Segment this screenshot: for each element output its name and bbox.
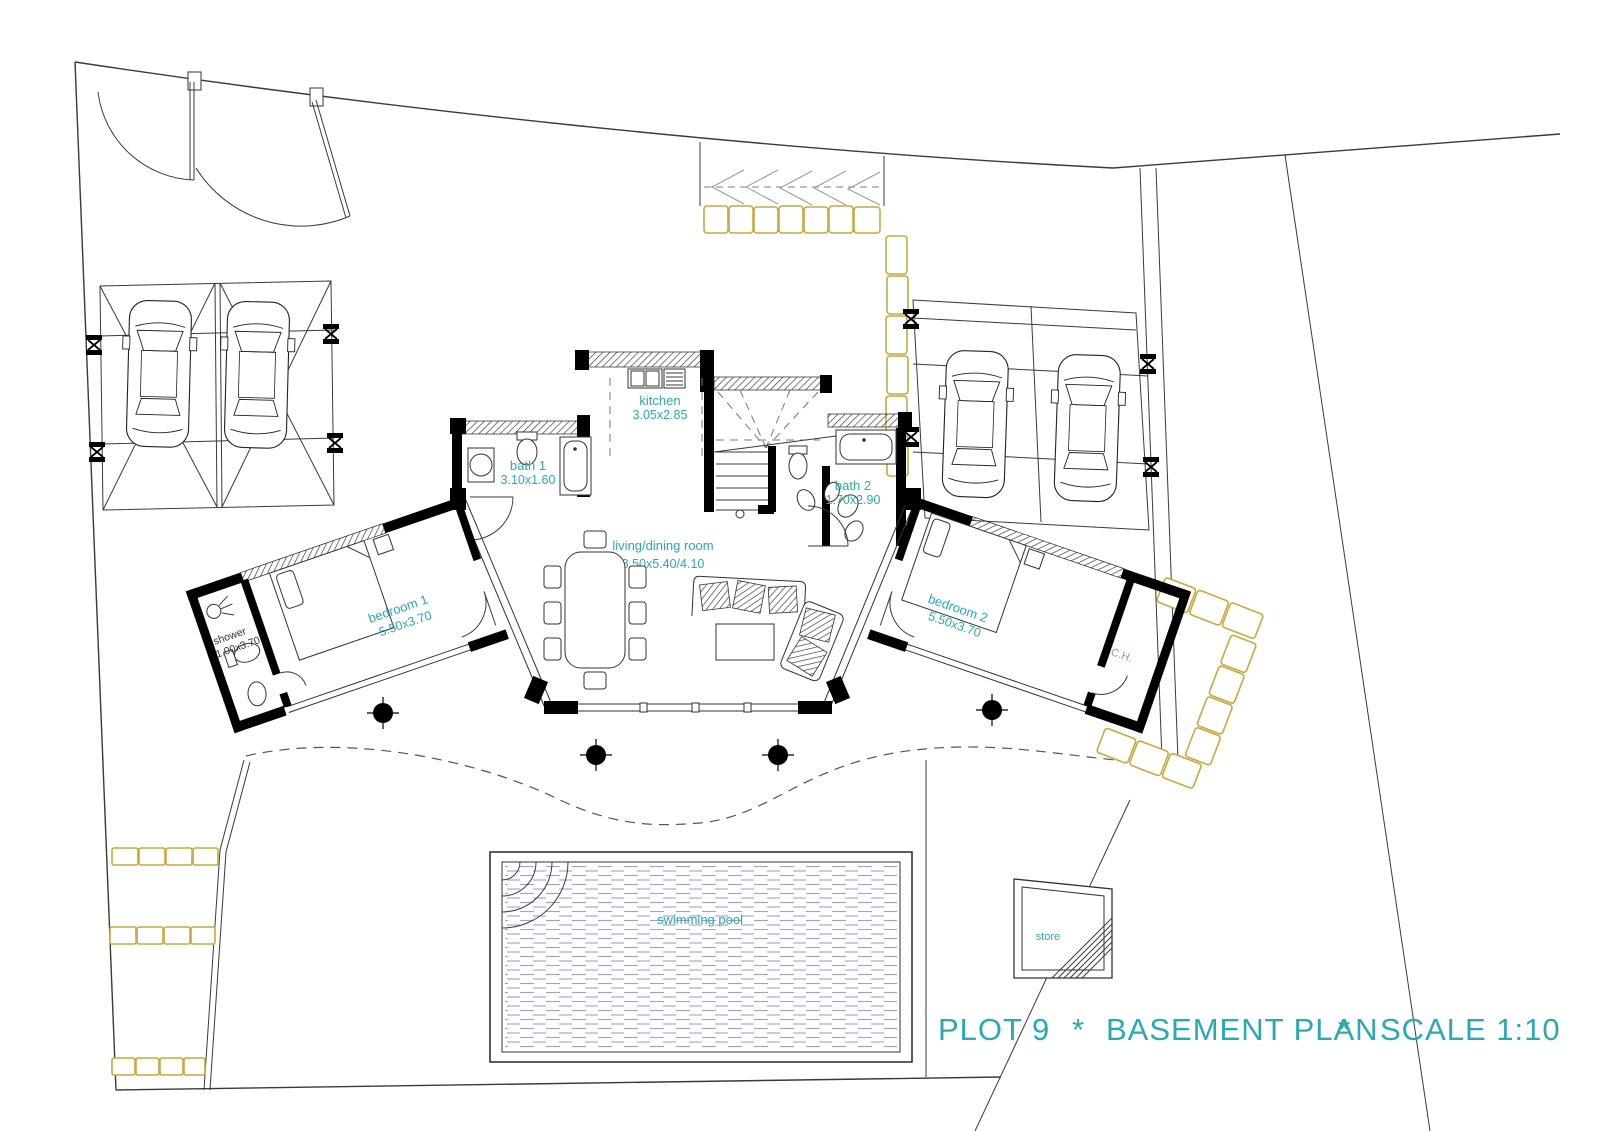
- door-arc: [450, 591, 496, 637]
- nightstand: [1024, 549, 1044, 569]
- bedroom-1-wing: shower 1.00x3.70 bedroom 1 5.50x3.70: [186, 497, 509, 733]
- door-arc: [1092, 666, 1128, 702]
- garden-steps: [110, 760, 250, 1090]
- coffee-table: [716, 624, 774, 660]
- title-separator: *: [1338, 1012, 1351, 1047]
- shower-sink: [247, 681, 267, 706]
- title-separator: *: [1072, 1012, 1085, 1047]
- car: [120, 300, 198, 448]
- dining-table: [544, 531, 646, 689]
- gate-leaf: [312, 100, 350, 218]
- door-arc: [470, 497, 513, 540]
- stone-wall-top: [704, 206, 880, 233]
- living-dining-room: living/dining room 8.50x5.40/4.10: [450, 488, 921, 714]
- parking-area: [903, 300, 1159, 530]
- floor-plan-drawing: bath 1 3.10x1.60 kitchen 3.05x2.85: [0, 0, 1600, 1131]
- terrace-column: [762, 739, 794, 771]
- floor-plan-canvas: bath 1 3.10x1.60 kitchen 3.05x2.85: [0, 0, 1600, 1131]
- store-label: store: [1036, 931, 1060, 943]
- room-label: kitchen: [639, 393, 680, 408]
- car: [1048, 354, 1127, 502]
- room-label: living/dining room: [612, 538, 713, 553]
- carport: [86, 281, 343, 510]
- terrace-column: [976, 694, 1008, 726]
- pool-label: swimming pool: [657, 912, 743, 927]
- title-scale: SCALE 1:10: [1380, 1012, 1561, 1047]
- terrace-column: [580, 739, 612, 771]
- room-dims: 3.10x1.60: [501, 473, 556, 487]
- entrance-gates: [98, 72, 350, 226]
- car: [218, 301, 296, 449]
- room-dims: 1.70x2.90: [826, 493, 881, 507]
- room-label: C.H.: [1109, 646, 1134, 665]
- store: store: [1014, 879, 1112, 978]
- gate-leaf: [190, 82, 194, 180]
- gate-swing-arc: [196, 168, 350, 226]
- car: [936, 350, 1015, 498]
- staircase: [704, 375, 836, 518]
- bedroom-2-wing: bedroom 2 5.50x3.70 C.H.: [867, 497, 1191, 734]
- nightstand: [373, 534, 393, 554]
- pool-water: [505, 866, 897, 1048]
- boundary-diagonal-right: [1285, 155, 1430, 1131]
- wc-toilet: [789, 453, 807, 479]
- front-window: [578, 704, 798, 711]
- door-arc: [281, 667, 306, 692]
- kitchen: kitchen 3.05x2.85: [575, 350, 714, 458]
- terrace-edge-dashed: [246, 747, 1115, 825]
- room-dims: 3.05x2.85: [633, 408, 688, 422]
- room-label: bath 2: [835, 478, 871, 493]
- terrace-column: [367, 697, 399, 729]
- bath-1: bath 1 3.10x1.60: [450, 415, 591, 540]
- shower-head: [205, 602, 223, 620]
- sofa: [692, 576, 806, 622]
- title-block: PLOT 9 * BASEMENT PLAN * SCALE 1:10: [938, 1012, 1561, 1047]
- wc-sink: [794, 486, 819, 513]
- room-label: bath 1: [510, 458, 546, 473]
- gate-swing-arc: [98, 92, 194, 180]
- title-plot: PLOT 9: [938, 1012, 1050, 1047]
- swimming-pool: swimming pool: [490, 852, 912, 1062]
